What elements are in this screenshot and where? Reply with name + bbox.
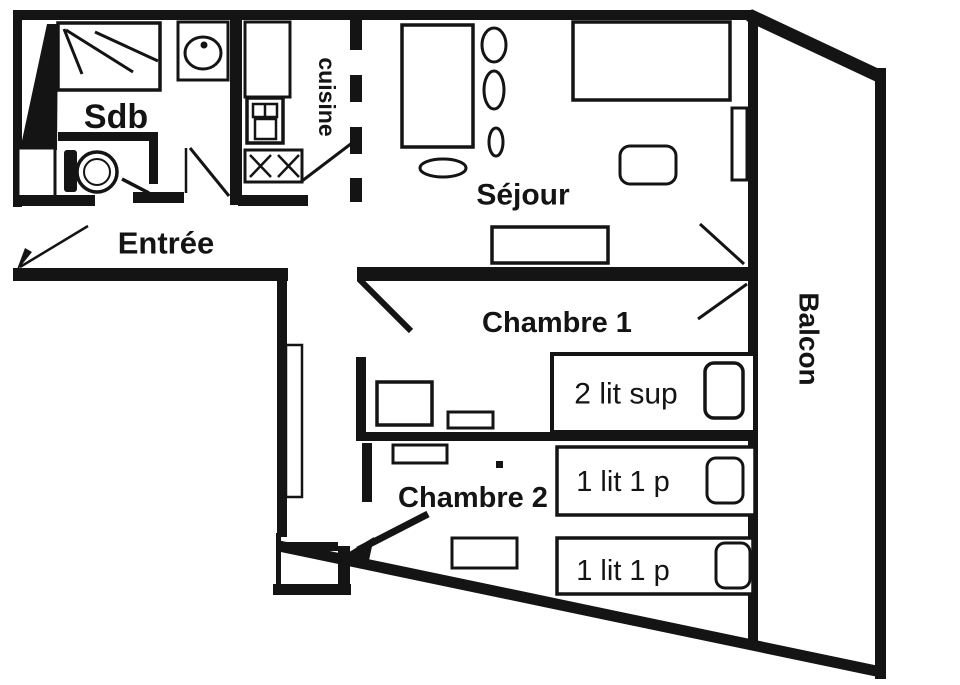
sejour-sideboard [492,227,608,263]
sdb-label: Sdb [84,98,148,136]
sejour-coffee-table [620,146,676,184]
sejour-label: Séjour [476,179,570,212]
sdb-door-leaf [122,179,149,193]
wall-top-right-diagonal [749,15,879,76]
entree-room: Entrée [16,226,214,273]
floor-plan: Balcon Sdb [0,0,960,685]
wall-corridor-thin [276,533,281,585]
chambre2-label: Chambre 2 [398,482,548,514]
chambre1-bunk-bed: 2 lit sup [552,354,755,432]
kitchen-door-leaf [302,143,352,181]
utility-shaft [273,542,351,595]
sejour-chair-1 [482,28,506,62]
sejour-chair-2 [484,71,504,109]
wall-bathroom-south-left [13,195,95,206]
hob-fixture [245,150,302,182]
cuisine-label: cuisine [314,57,340,136]
wall-sejour-south [357,267,755,281]
oven-fixture [247,98,283,143]
wall-top [13,10,752,20]
kitchen-counter [245,22,290,97]
chambre2-bed-upper: 1 lit 1 p [557,447,755,515]
sejour-room: Séjour [357,22,755,281]
chambre1-balcony-door-leaf [698,284,747,319]
toilet-fixture [64,150,117,192]
chambre1-door-leaf [359,279,411,331]
plan-dot [496,461,503,468]
balcon-room: Balcon [748,13,825,648]
shower-fixture [58,23,160,90]
sink-fixture [178,22,228,80]
sejour-chair-4 [420,159,466,177]
chambre1-label: Chambre 1 [482,307,632,339]
pillow [716,543,750,588]
wall-chambre1-left [356,357,366,437]
chambre1-stool [448,412,493,428]
wall-bathroom-south-mid [133,192,184,203]
wall-kitchen-divider [230,13,242,205]
wall-right [875,68,886,679]
entree-label: Entrée [118,226,214,261]
entrance-door-leaf [20,226,88,267]
hall-door-leaf [190,148,229,196]
bathroom: Sdb [13,22,229,206]
bathroom-closet [18,148,55,202]
wall-sdb-inner-v [149,132,158,184]
kitchen: cuisine [230,13,362,206]
chambre2-room: 1 lit 1 p 1 lit 1 p Chambre 2 [273,443,755,595]
chambre2-shelf [393,445,447,463]
bed-upper-label: 1 lit 1 p [576,466,670,498]
chambre1-table [377,382,432,425]
pillow [707,458,743,503]
sejour-shelf-right [732,108,747,180]
sejour-table [402,25,473,147]
chambre1-wardrobe [286,345,302,497]
bunk-bed-label: 2 lit sup [574,378,677,411]
chambre2-entry-arrow [341,514,428,565]
wall-kitchen-dashed [350,18,362,202]
wall-chambre2-left [362,443,372,502]
sejour-chair-3 [489,128,503,156]
pillow [705,363,743,418]
wall-wedge [20,24,58,150]
chambre2-bed-lower: 1 lit 1 p [557,538,753,594]
wall-kitchen-south [238,195,308,206]
sejour-bed [573,22,730,100]
sejour-balcony-door-leaf [700,224,744,264]
balcon-label: Balcon [794,292,825,385]
wall-entree-south [13,268,288,281]
bed-lower-label: 1 lit 1 p [576,555,670,587]
chambre2-table [452,538,517,568]
